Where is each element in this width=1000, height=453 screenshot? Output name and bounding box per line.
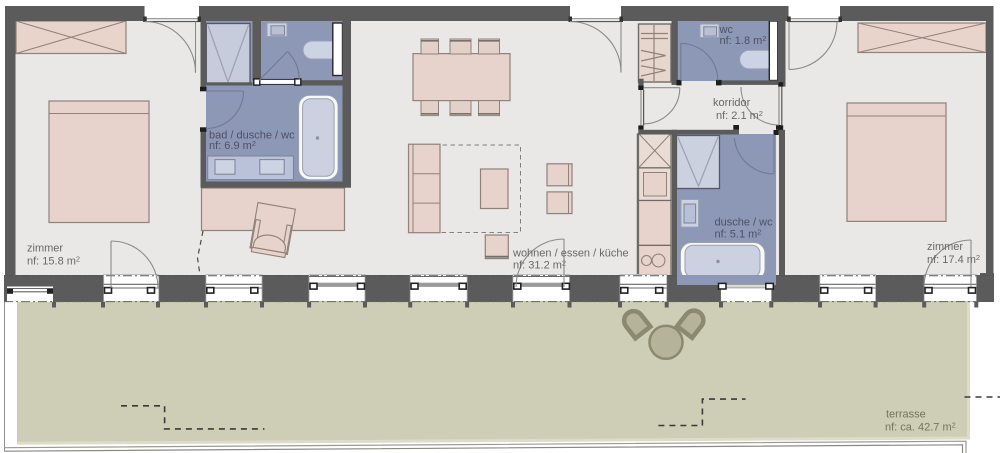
- svg-text:wohnen / essen / küche: wohnen / essen / küche: [512, 248, 629, 260]
- svg-text:zimmer: zimmer: [927, 241, 963, 253]
- svg-text:zimmer: zimmer: [27, 243, 63, 255]
- svg-text:nf: 2.1 m2: nf: 2.1 m2: [716, 109, 763, 122]
- svg-text:dusche / wc: dusche / wc: [715, 217, 774, 229]
- svg-text:nf: 1.8 m2: nf: 1.8 m2: [720, 34, 767, 47]
- svg-text:nf: ca. 42.7 m2: nf: ca. 42.7 m2: [885, 421, 956, 434]
- svg-text:nf: 31.2 m2: nf: 31.2 m2: [513, 259, 566, 272]
- svg-text:nf: 17.4 m2: nf: 17.4 m2: [927, 253, 980, 266]
- svg-text:korridor: korridor: [713, 97, 751, 109]
- svg-text:terrasse: terrasse: [886, 409, 926, 421]
- svg-text:nf: 6.9 m2: nf: 6.9 m2: [209, 139, 256, 152]
- svg-text:nf: 15.8 m2: nf: 15.8 m2: [27, 255, 80, 268]
- svg-text:nf: 5.1 m2: nf: 5.1 m2: [715, 228, 762, 241]
